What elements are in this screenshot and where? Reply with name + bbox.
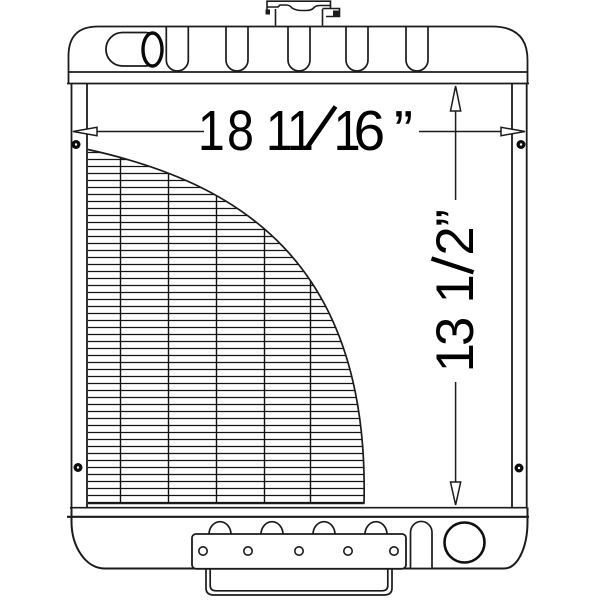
svg-text:1312”: 1312” [426,209,485,372]
svg-text:6”: 6” [354,99,413,163]
